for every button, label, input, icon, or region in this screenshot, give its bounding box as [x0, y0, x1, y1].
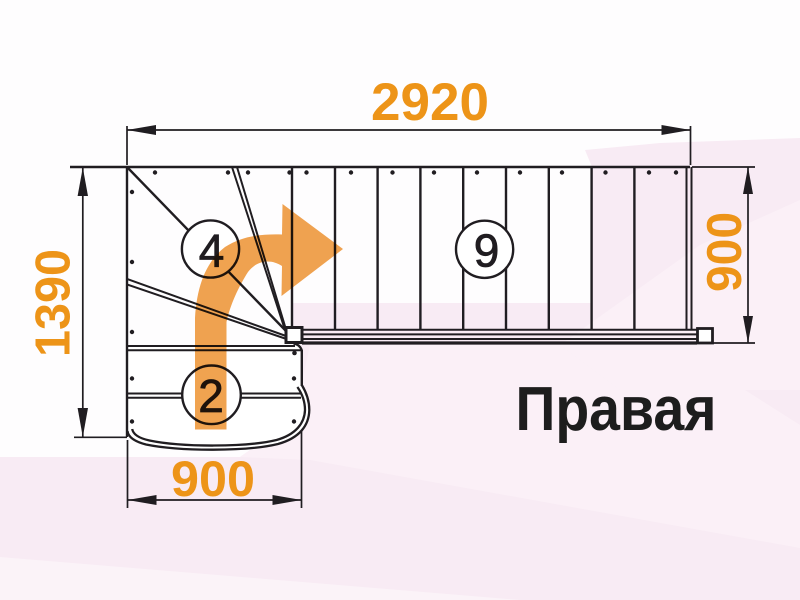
- svg-text:9: 9: [474, 224, 500, 276]
- svg-text:900: 900: [171, 451, 255, 507]
- svg-text:1390: 1390: [27, 249, 81, 357]
- svg-text:2920: 2920: [371, 73, 489, 132]
- svg-text:900: 900: [698, 212, 752, 292]
- svg-text:Правая: Правая: [516, 375, 717, 444]
